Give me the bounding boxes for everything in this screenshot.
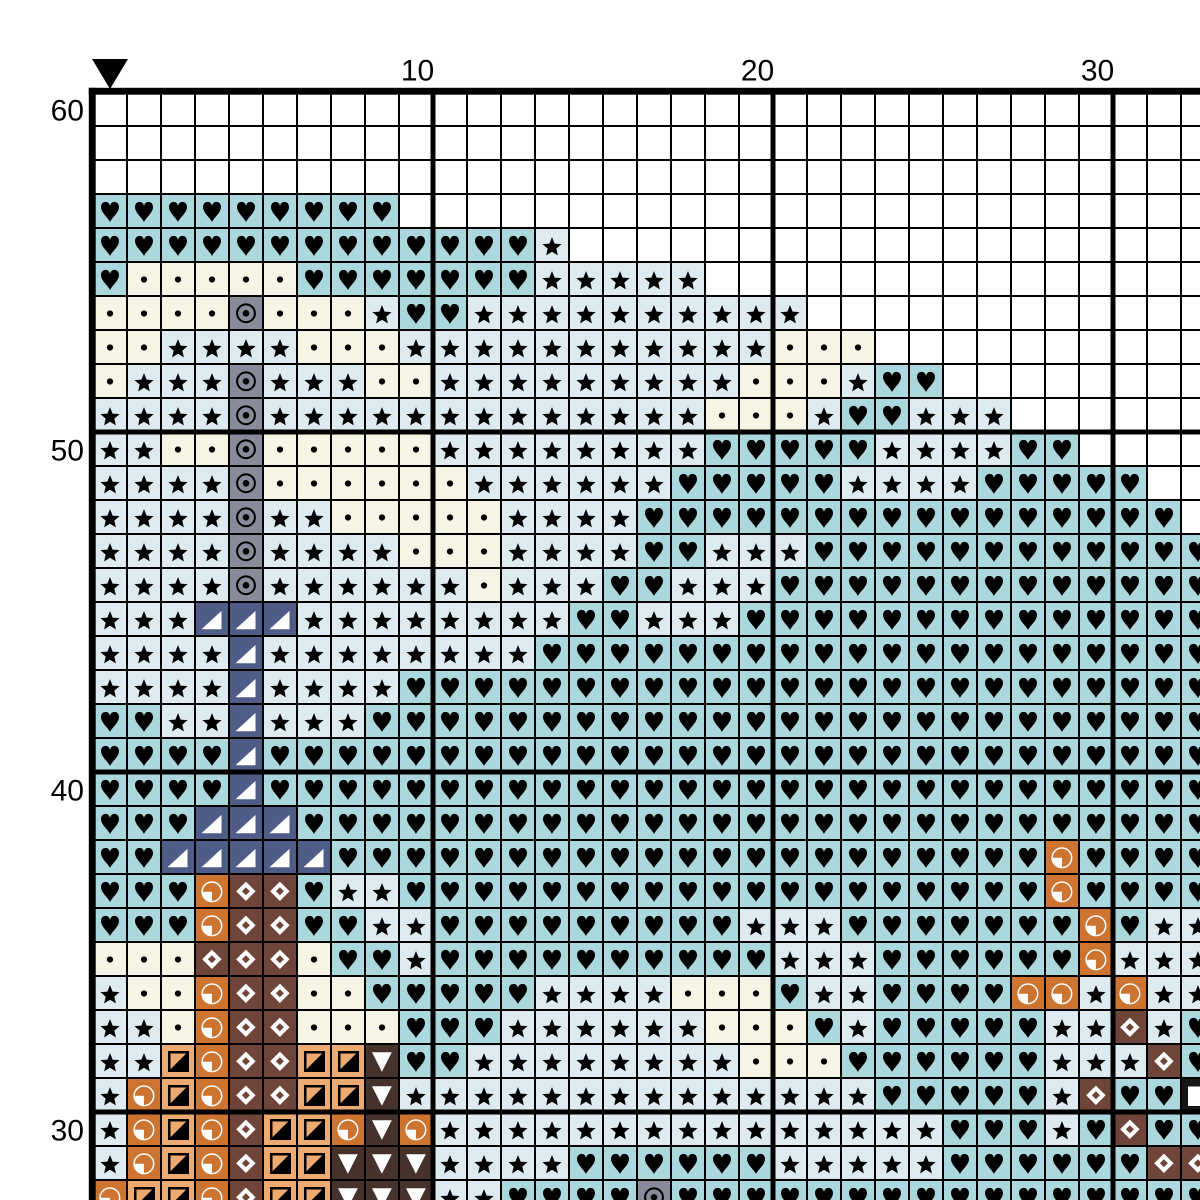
svg-text:30: 30: [1081, 55, 1114, 88]
svg-text:20: 20: [741, 55, 774, 88]
svg-text:50: 50: [51, 435, 84, 468]
svg-text:10: 10: [401, 55, 434, 88]
svg-text:60: 60: [51, 95, 84, 128]
svg-text:40: 40: [51, 775, 84, 808]
svg-text:30: 30: [51, 1115, 84, 1148]
